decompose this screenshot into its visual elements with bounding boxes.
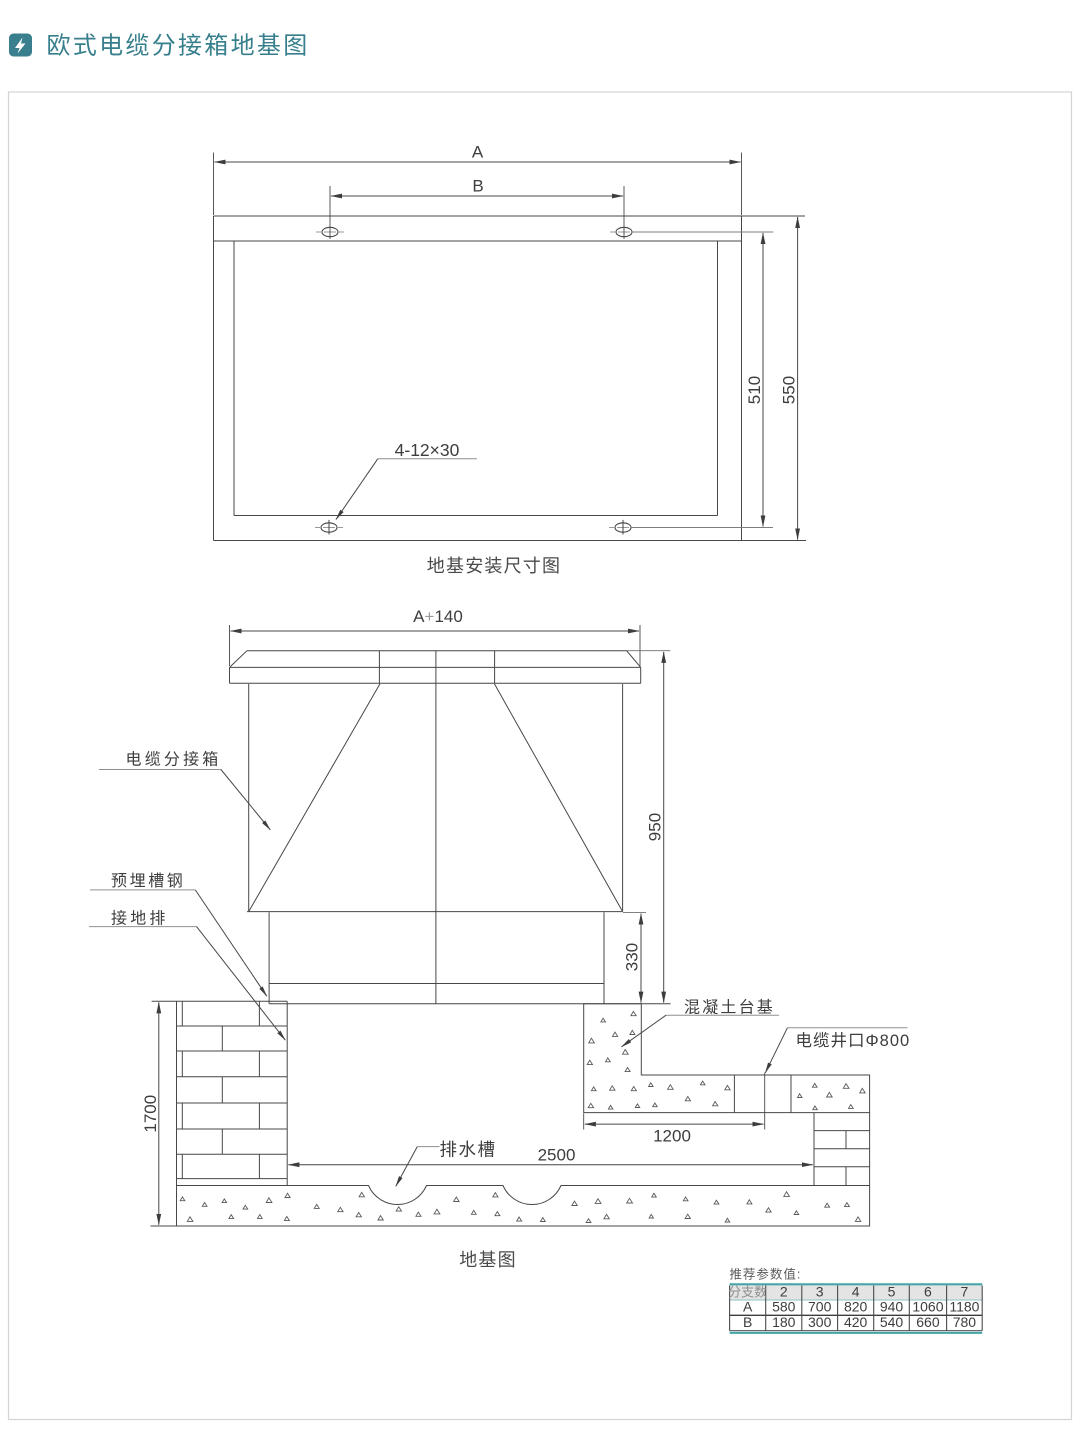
svg-text:混凝土台基: 混凝土台基: [684, 999, 775, 1017]
svg-text:940: 940: [880, 1299, 904, 1315]
svg-text:地基图: 地基图: [459, 1250, 517, 1270]
svg-text:1700: 1700: [141, 1095, 160, 1133]
svg-text:A: A: [743, 1299, 753, 1315]
svg-text:接地排: 接地排: [111, 910, 169, 928]
svg-text:欧式电缆分接箱地基图: 欧式电缆分接箱地基图: [47, 33, 310, 60]
svg-text:B: B: [743, 1314, 752, 1330]
svg-text:1200: 1200: [653, 1127, 691, 1146]
svg-text:780: 780: [953, 1314, 977, 1330]
svg-text:1060: 1060: [912, 1299, 943, 1315]
svg-text:B: B: [472, 177, 483, 196]
svg-text:A+140: A+140: [413, 607, 463, 626]
svg-text:420: 420: [844, 1314, 868, 1330]
svg-text:电缆分接箱: 电缆分接箱: [126, 751, 222, 769]
svg-text:950: 950: [646, 813, 665, 841]
svg-text:540: 540: [880, 1314, 904, 1330]
svg-text:分支数: 分支数: [728, 1284, 767, 1299]
svg-text:推荐参数值:: 推荐参数值:: [729, 1267, 801, 1282]
svg-text:550: 550: [780, 376, 799, 404]
svg-text:300: 300: [808, 1314, 832, 1330]
svg-text:电缆井口Φ800: 电缆井口Φ800: [796, 1031, 911, 1050]
svg-text:4-12×30: 4-12×30: [395, 440, 460, 460]
svg-text:7: 7: [961, 1283, 969, 1299]
svg-text:3: 3: [816, 1283, 824, 1299]
svg-text:330: 330: [623, 943, 642, 971]
svg-text:5: 5: [888, 1283, 896, 1299]
svg-text:2500: 2500: [538, 1146, 576, 1165]
svg-text:180: 180: [772, 1314, 796, 1330]
svg-text:排水槽: 排水槽: [440, 1140, 497, 1160]
svg-text:预埋槽钢: 预埋槽钢: [111, 872, 185, 890]
svg-text:700: 700: [808, 1299, 832, 1315]
svg-text:6: 6: [924, 1283, 932, 1299]
svg-text:580: 580: [772, 1299, 796, 1315]
svg-text:1180: 1180: [949, 1299, 979, 1315]
svg-text:660: 660: [916, 1314, 940, 1330]
svg-text:510: 510: [745, 376, 764, 404]
svg-text:A: A: [472, 143, 484, 162]
svg-text:2: 2: [780, 1283, 788, 1299]
svg-text:820: 820: [844, 1299, 868, 1315]
svg-text:地基安装尺寸图: 地基安装尺寸图: [427, 556, 561, 576]
svg-text:4: 4: [852, 1283, 860, 1299]
